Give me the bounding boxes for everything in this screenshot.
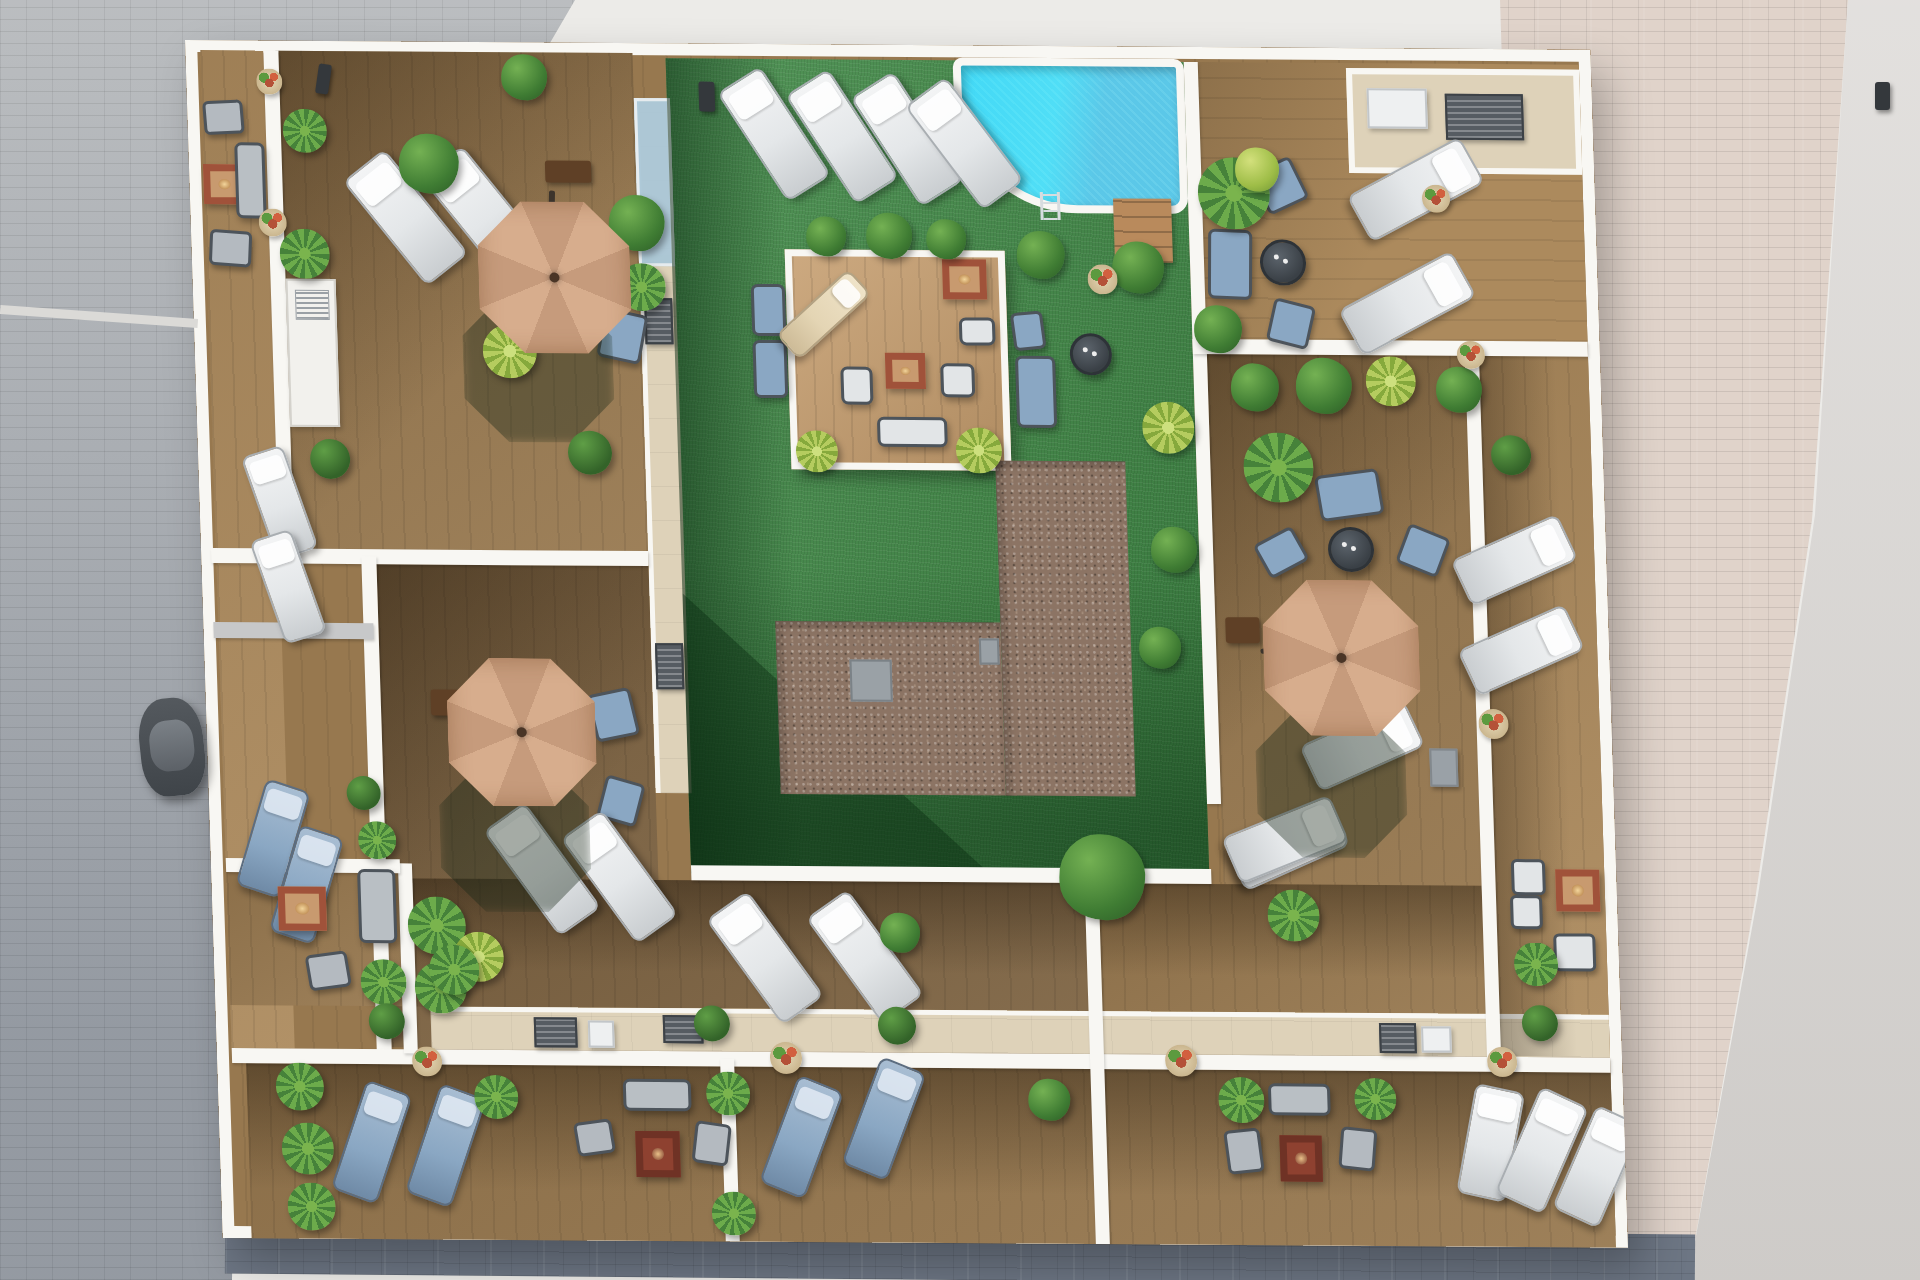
plant [1150,527,1197,573]
street-lamp [1875,82,1890,110]
flower-pot [1478,709,1509,739]
shrub-ball [346,776,381,810]
flower-pot [258,208,287,236]
sofa [877,417,948,447]
plant [398,133,460,193]
fire-table [1279,1135,1322,1181]
utility-box [1421,1026,1452,1052]
plant [1111,241,1165,293]
fire-table [1555,869,1600,911]
plant [1058,834,1147,921]
outdoor-kitchen-counter [286,279,341,427]
round-table [1259,239,1306,285]
plant [1295,358,1353,414]
sofa [1314,468,1385,522]
shrub-ball [1490,435,1531,475]
plant [1354,1078,1397,1120]
fire-table [885,353,926,389]
shrub-ball [368,1003,405,1039]
umbrella-base [1225,617,1260,643]
armchair [1553,933,1596,971]
fire-table [278,886,327,930]
fire-table [942,259,987,299]
plant [282,109,327,153]
flower-pot [1487,1047,1518,1077]
seat-cushion [959,317,996,345]
plant [879,913,920,953]
plant [1193,305,1243,353]
plant [1513,942,1558,986]
plant [1218,1077,1265,1123]
sofa [234,142,266,218]
shrub-ball [567,431,612,475]
ac-unit [655,643,684,689]
umbrella-base [545,160,592,182]
ac-unit [1445,94,1524,141]
plant [358,821,397,859]
flower-pot [1165,1045,1198,1077]
seat-cushion [840,366,873,404]
flower-pot [1422,185,1451,213]
roof-hatch [849,659,892,701]
fire-table [635,1131,680,1177]
utility-box [588,1021,615,1048]
flower-pot [1456,341,1485,369]
gravel-roof-bottom [775,621,1005,796]
plant [474,1075,519,1119]
armchair [573,1118,616,1157]
sofa [357,869,397,943]
utility-box [1429,749,1458,787]
plant [705,1071,750,1115]
plant [1028,1079,1071,1121]
roof-vent [979,638,1000,664]
flower-pot [256,68,283,94]
sofa [1208,228,1252,300]
ac-unit [1379,1023,1417,1053]
plant [500,54,547,100]
shrub-ball [693,1005,730,1041]
armchair [692,1120,732,1167]
sofa [1268,1083,1331,1115]
armchair [209,229,252,268]
flower-pot [1087,264,1118,294]
plant [1138,627,1181,669]
shrub-ball [1521,1005,1558,1041]
plant [1234,147,1279,191]
armchair [1223,1127,1265,1174]
flower-pot [770,1042,803,1074]
plant [955,427,1002,473]
armchair [202,99,245,135]
flower-pot [412,1046,443,1076]
armchair [1338,1126,1377,1172]
sofa [623,1079,692,1111]
plant [711,1191,756,1235]
pool-ladder [1040,192,1061,220]
plant [287,1182,337,1230]
ac-unit [534,1017,578,1047]
building-rooftop [185,40,1628,1248]
plant [360,959,407,1005]
plant [1016,231,1066,279]
plant [795,430,838,472]
rooftop-aerial-render [0,0,1920,1280]
round-table [1069,333,1112,375]
gravel-roof-right [995,461,1136,797]
plant [1435,367,1482,413]
plant [926,219,967,259]
plant [275,1062,325,1110]
plant [1230,363,1280,411]
round-table [1327,527,1374,572]
armchair [1510,895,1543,929]
seat-cushion [940,363,975,397]
light-bollard [698,82,715,112]
utility-box [1367,88,1428,128]
shrub-ball [877,1007,916,1045]
armchair [1010,310,1047,351]
plant [806,216,847,256]
shrub-ball [310,439,351,479]
armchair [304,950,352,991]
armchair [1511,859,1546,895]
sofa [1015,356,1057,428]
sofa [752,340,788,398]
plant [865,213,912,259]
